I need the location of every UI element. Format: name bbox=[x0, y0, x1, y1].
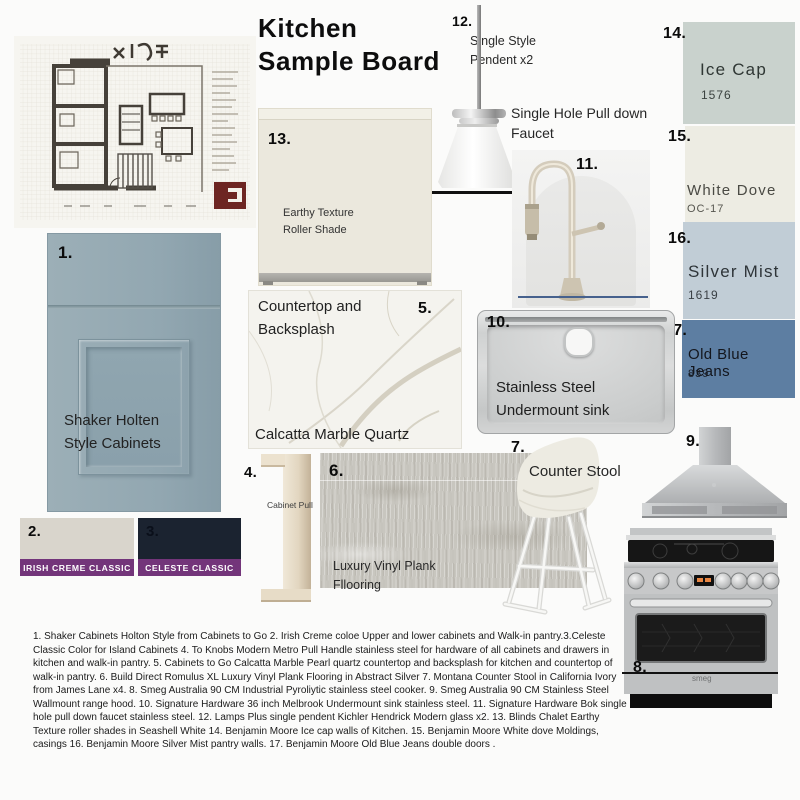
swatch-irish-creme-text: IRISH CREME CLASSIC bbox=[23, 563, 131, 573]
kitchen-sample-board: Kitchen Sample Board 12. Single Style Pe… bbox=[0, 0, 800, 800]
faucet-label: Single Hole Pull down Faucet bbox=[511, 103, 647, 144]
range-photo: smeg bbox=[622, 528, 780, 710]
range-brand-text: smeg bbox=[692, 674, 712, 683]
cabinet-door-photo bbox=[47, 233, 221, 512]
item-number-7: 7. bbox=[511, 439, 525, 457]
paint-code: 1576 bbox=[701, 88, 732, 102]
paint-chip-white-dove: White Dove OC-17 bbox=[685, 126, 795, 222]
page-title-line2: Sample Board bbox=[258, 45, 440, 78]
pendant-rod bbox=[477, 5, 481, 111]
flooring-label: Luxury Vinyl Plank Fllooring bbox=[333, 557, 436, 595]
countertop-label-line2: Backsplash bbox=[258, 319, 361, 342]
item-number-1: 1. bbox=[58, 243, 73, 263]
page-title: Kitchen Sample Board bbox=[258, 12, 440, 79]
faucet-label-line2: Faucet bbox=[511, 123, 647, 143]
item-number-14: 14. bbox=[663, 25, 686, 43]
footnote-paragraph: 1. Shaker Cabinets Holton Style from Cab… bbox=[33, 630, 633, 752]
item-number-15: 15. bbox=[668, 128, 691, 146]
counter-stool-photo bbox=[493, 430, 625, 628]
item-number-10: 10. bbox=[487, 314, 510, 332]
cabinet-label-line1: Shaker Holten bbox=[64, 410, 161, 433]
item-number-6: 6. bbox=[329, 461, 344, 481]
swatch-irish-creme-caption: IRISH CREME CLASSIC bbox=[20, 559, 134, 576]
page-title-line1: Kitchen bbox=[258, 12, 440, 45]
cabinet-pull-label: Cabinet Pull bbox=[267, 500, 313, 510]
pendant-shade bbox=[438, 124, 516, 188]
faucet-label-line1: Single Hole Pull down bbox=[511, 103, 647, 123]
paint-name: White Dove bbox=[687, 182, 777, 199]
paint-name: Silver Mist bbox=[688, 262, 780, 282]
roller-shade-label-line1: Earthy Texture bbox=[283, 205, 354, 222]
range-hood-photo bbox=[637, 425, 792, 529]
paint-code: 1619 bbox=[688, 288, 719, 302]
flooring-label-line1: Luxury Vinyl Plank bbox=[333, 557, 436, 576]
sink-label-line1: Stainless Steel bbox=[496, 377, 609, 400]
faucet-underline bbox=[518, 296, 648, 298]
item-number-2: 2. bbox=[28, 523, 41, 540]
roller-shade-label: Earthy Texture Roller Shade bbox=[283, 205, 354, 239]
paint-code: OC-17 bbox=[687, 203, 724, 215]
cabinet-label: Shaker Holten Style Cabinets bbox=[64, 410, 161, 455]
cabinet-drawer-divider bbox=[48, 305, 220, 309]
sink-lip bbox=[485, 317, 667, 322]
paint-name: Ice Cap bbox=[700, 60, 767, 80]
paint-chip-ice-cap: Ice Cap 1576 bbox=[683, 22, 795, 124]
item-number-8: 8. bbox=[633, 659, 647, 677]
roller-shade-label-line2: Roller Shade bbox=[283, 222, 354, 239]
cabinet-label-line2: Style Cabinets bbox=[64, 433, 161, 456]
sink-label: Stainless Steel Undermount sink bbox=[496, 377, 609, 422]
floor-plan-sketch bbox=[14, 36, 256, 228]
sink-label-line2: Undermount sink bbox=[496, 400, 609, 423]
paint-chip-silver-mist: Silver Mist 1619 bbox=[683, 222, 795, 319]
cabinet-pull-photo bbox=[253, 452, 315, 610]
item-number-13: 13. bbox=[268, 131, 291, 149]
paint-code: 839 bbox=[688, 368, 709, 380]
countertop-caption: Calcatta Marble Quartz bbox=[255, 426, 409, 443]
countertop-label-line1: Countertop and bbox=[258, 296, 361, 319]
pendant-collar bbox=[452, 109, 506, 118]
item-number-12: 12. bbox=[452, 13, 472, 29]
roller-shade-rail bbox=[259, 273, 431, 282]
swatch-celeste-caption: CELESTE CLASSIC bbox=[138, 559, 241, 576]
flooring-label-line2: Fllooring bbox=[333, 576, 436, 595]
floor-plan-drawing bbox=[14, 36, 256, 228]
paint-chip-old-blue-jeans: Old Blue Jeans 839 bbox=[682, 320, 795, 398]
item-number-9: 9. bbox=[686, 433, 700, 451]
item-number-16: 16. bbox=[668, 230, 691, 248]
item-number-5: 5. bbox=[418, 300, 432, 318]
item-number-3: 3. bbox=[146, 523, 159, 540]
countertop-label: Countertop and Backsplash bbox=[258, 296, 361, 341]
roller-shade-valance bbox=[259, 109, 431, 120]
stool-label: Counter Stool bbox=[529, 463, 621, 480]
swatch-celeste-text: CELESTE CLASSIC bbox=[145, 563, 234, 573]
item-number-11: 11. bbox=[576, 156, 598, 174]
sink-drain bbox=[564, 327, 594, 357]
